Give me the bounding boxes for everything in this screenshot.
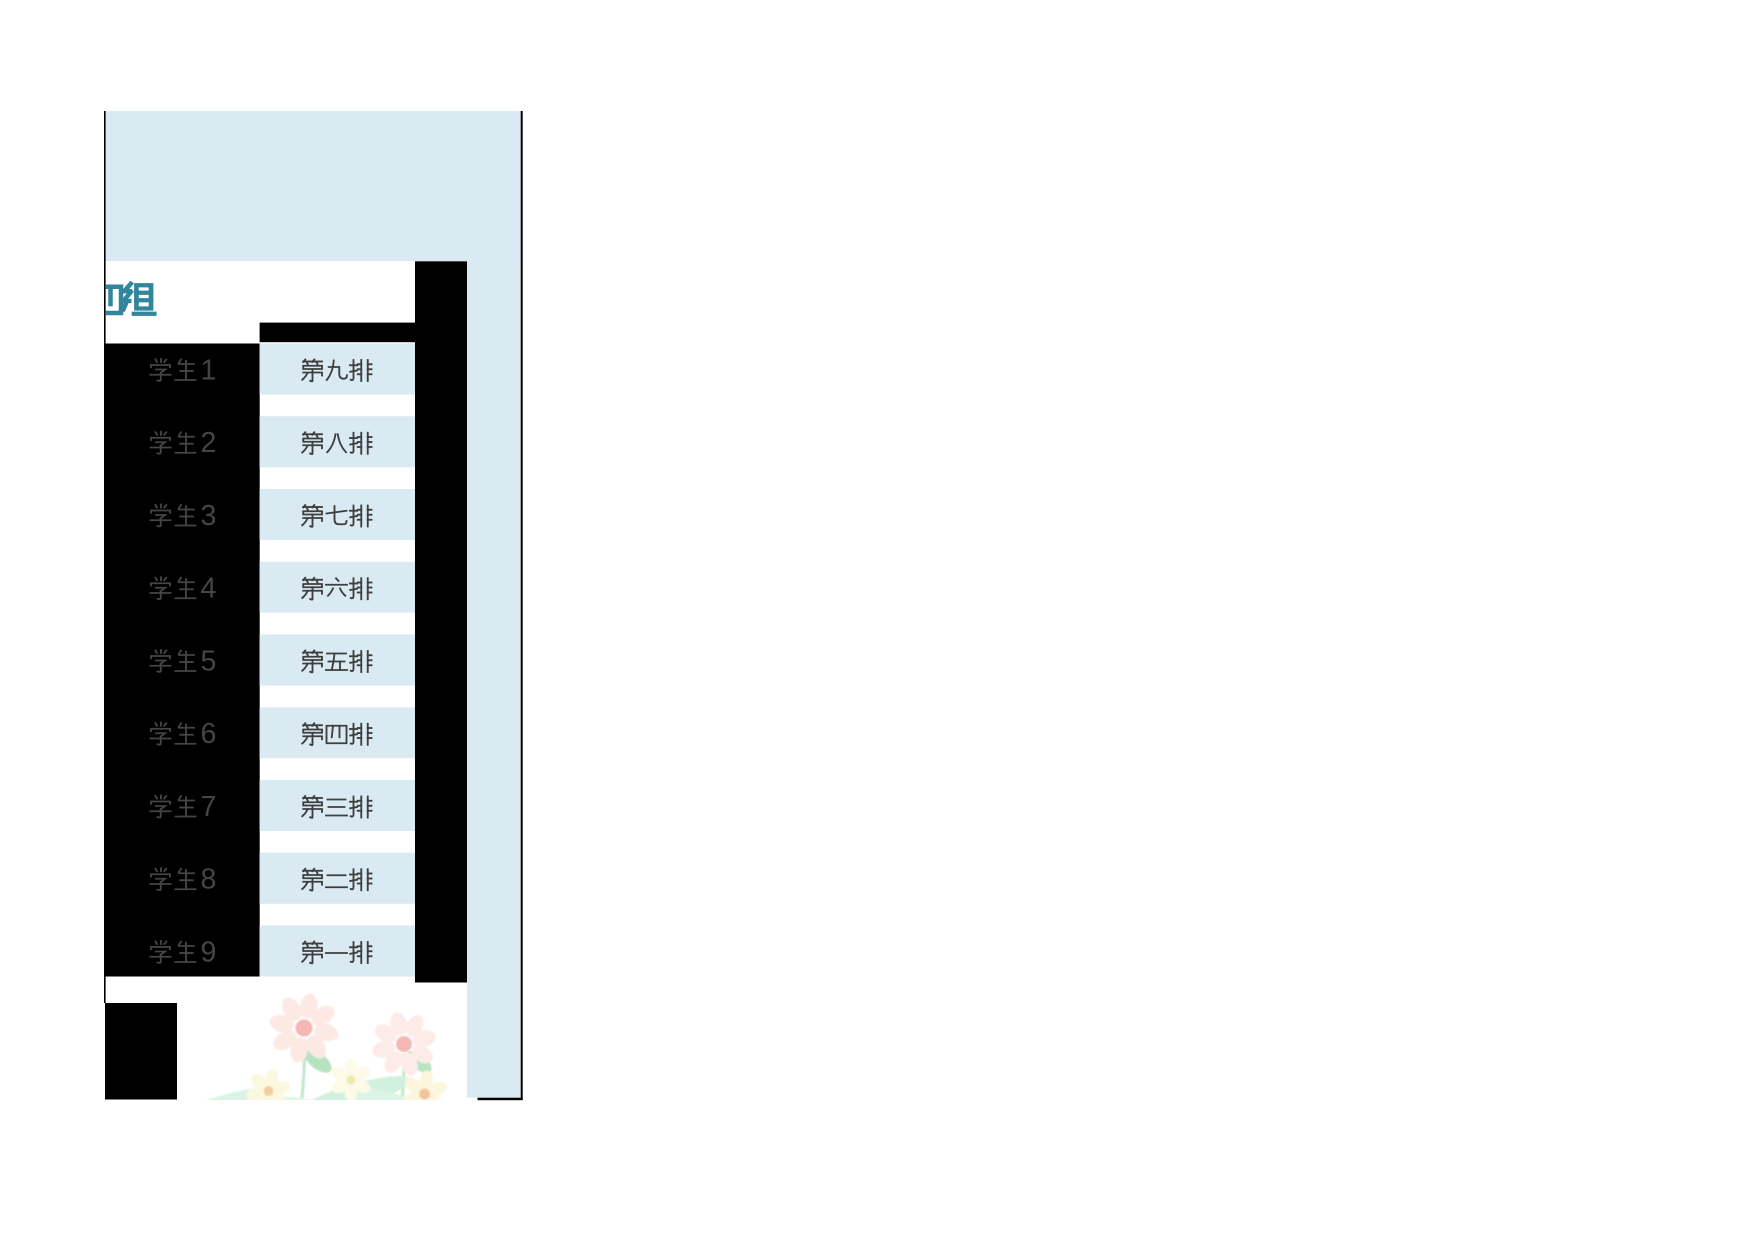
svg-text:5: 5 xyxy=(201,645,217,677)
svg-text:8: 8 xyxy=(201,864,217,896)
svg-text:1: 1 xyxy=(201,354,217,386)
svg-text:3: 3 xyxy=(201,500,217,532)
svg-text:7: 7 xyxy=(201,791,217,823)
svg-text:2: 2 xyxy=(201,427,217,459)
svg-text:6: 6 xyxy=(201,718,217,750)
svg-text:9: 9 xyxy=(201,936,217,968)
svg-text:4: 4 xyxy=(201,573,217,605)
